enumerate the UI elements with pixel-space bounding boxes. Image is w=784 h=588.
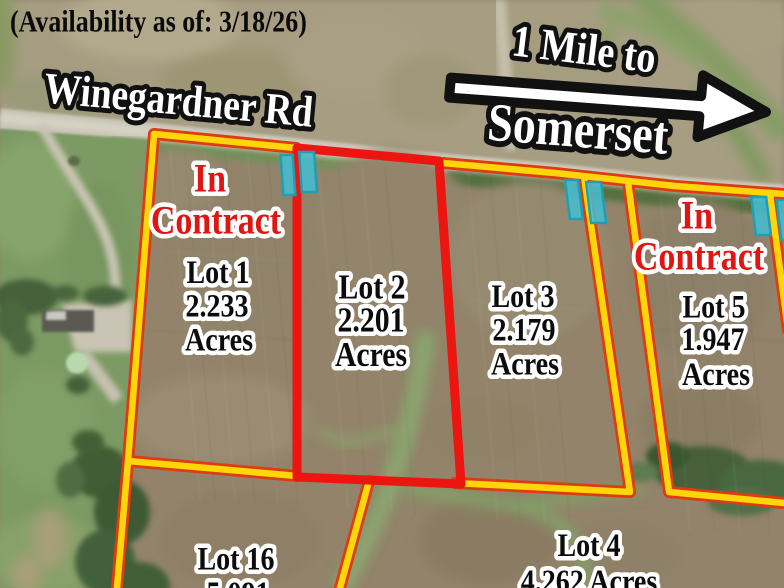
svg-text:(Availability as of: 3/18/26): (Availability as of: 3/18/26) — [10, 6, 307, 39]
svg-text:4.262 Acres: 4.262 Acres — [521, 563, 658, 588]
svg-text:Lot 4: Lot 4 — [557, 527, 620, 564]
svg-text:Acres: Acres — [185, 321, 253, 358]
svg-text:2.179: 2.179 — [492, 311, 555, 348]
svg-text:2.233: 2.233 — [185, 287, 248, 324]
svg-text:Contract: Contract — [634, 235, 765, 279]
svg-text:Acres: Acres — [682, 356, 750, 393]
svg-text:1.947: 1.947 — [681, 321, 744, 358]
svg-text:Lot 16: Lot 16 — [197, 540, 274, 577]
svg-text:2.201: 2.201 — [338, 301, 405, 340]
svg-text:Lot 1: Lot 1 — [186, 254, 249, 291]
svg-text:Lot 3: Lot 3 — [491, 278, 554, 315]
svg-text:Acres: Acres — [491, 345, 559, 382]
svg-text:Lot 5: Lot 5 — [682, 288, 745, 325]
svg-text:5.091: 5.091 — [206, 575, 269, 588]
svg-text:Contract: Contract — [151, 199, 282, 243]
svg-text:In: In — [681, 194, 713, 238]
svg-text:Acres: Acres — [335, 336, 407, 375]
svg-text:In: In — [194, 157, 226, 201]
